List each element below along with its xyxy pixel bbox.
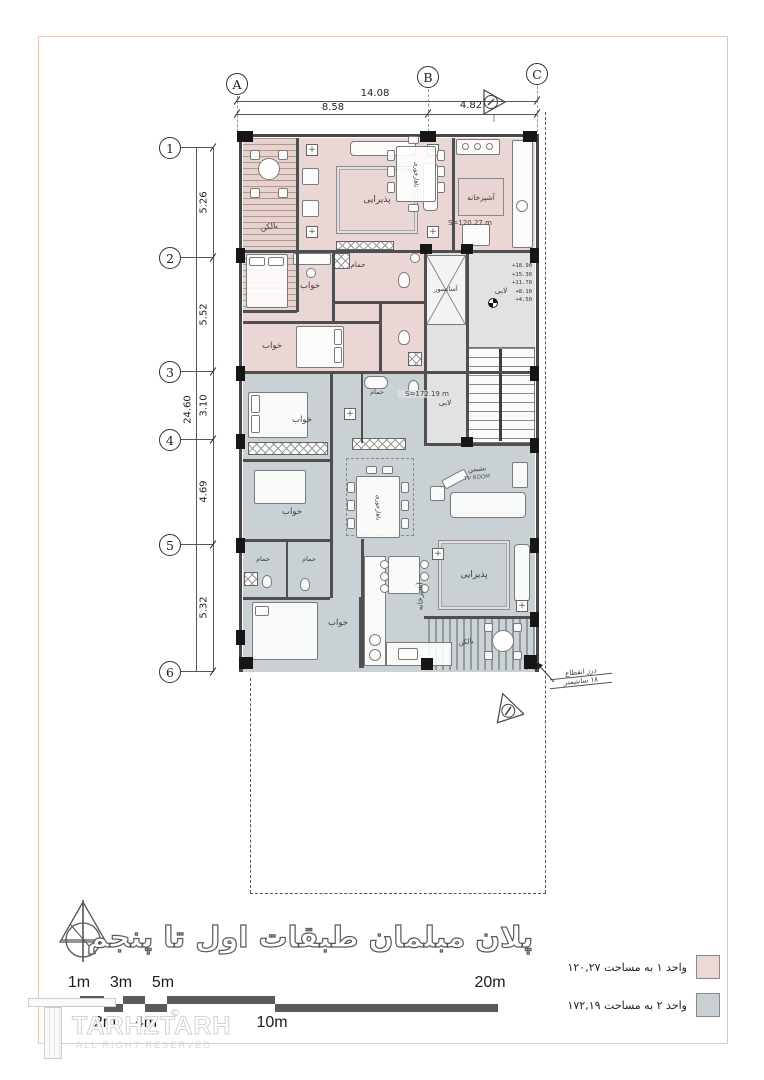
grid-row-marker-1: 1 [159,137,181,159]
stove-burner [462,143,469,150]
dim-r2-r3: 5.52 [199,297,210,333]
dim-r1-r2: 5.26 [199,185,210,221]
column [239,657,253,669]
wall [359,597,362,668]
dining-chair [437,150,445,161]
grid-leader-line [181,544,213,545]
grid-leader-line [181,371,213,372]
legend-swatch-unit2 [696,993,720,1017]
dining-chair [401,482,409,493]
dining-table-label: ناهارخوری [374,494,381,520]
kitchen-counter [512,140,533,248]
balcony-chair [513,623,522,632]
grid-row-marker-6: 6 [159,661,181,683]
column [461,437,473,447]
lot-boundary [250,678,251,893]
wall [424,616,535,619]
column [420,244,432,254]
column [236,248,245,263]
dimension-line [196,148,197,672]
balcony-chair [278,188,288,198]
toilet [398,272,410,288]
grid-row-marker-4: 4 [159,429,181,451]
dim-r4-r5: 4.69 [199,474,210,510]
column [530,612,539,627]
legend-row-unit1: واحد ۱ به مساحت ۱۲۰,۲۷ [540,950,720,984]
dining-chair [382,466,393,474]
plus-symbol: + [344,408,356,420]
sink [410,253,420,263]
chair [380,572,389,581]
armchair [302,168,319,185]
drawing-title: پلان مبلمان طبقات اول تا پنجم [87,920,533,954]
balcony-table [258,158,280,180]
level-value: +4.50 [498,296,532,305]
dining-chair [401,518,409,529]
scale-bar-segment [145,1004,167,1012]
kitchen-sink [369,634,381,646]
lobby-label: لابی [430,398,460,407]
column [530,538,539,553]
bedroom-label: خواب [322,618,354,628]
legend-row-unit2: واحد ۲ به مساحت ۱۷۲,۱۹ [540,988,720,1022]
column [237,131,253,142]
grid-row-label: 1 [166,141,174,156]
level-value: +11.70 [498,279,532,288]
living-room-label: پذیرایی [460,570,487,580]
balcony-chair [513,651,522,660]
dining-chair [408,204,419,212]
balcony-chair [278,150,288,160]
pillow [255,606,269,616]
dining-chair [387,150,395,161]
scale-label: 20m [470,974,510,992]
scale-label: 10m [252,1014,292,1032]
dining-chair [387,166,395,177]
watermark-subtitle: ALL RIGHT RESERVED [76,1040,212,1051]
dining-table-label: ناهارخوری [412,161,419,187]
wall [379,301,382,371]
grid-row-label: 2 [166,251,174,266]
tsquare-icon-blade [44,1007,62,1059]
chair [380,560,389,569]
wall [243,310,297,313]
side-table [512,462,528,488]
column [236,366,245,381]
bedroom-label: خواب [256,341,288,351]
column [530,438,539,453]
column [530,366,539,381]
dining-chair [347,482,355,493]
dimension-line [213,148,214,672]
bath-label: حمام [250,555,276,563]
balcony-chair [484,651,493,660]
wall [243,597,330,600]
desk-chair [306,268,316,278]
armchair [430,486,445,501]
dining-chair [387,182,395,193]
grid-leader-line [181,257,213,258]
level-value: +15.30 [498,271,532,280]
balcony-table [492,630,514,652]
legend-swatch-unit1 [696,955,720,979]
section-marker-icon [478,86,510,122]
bath-label: حمام [344,261,372,269]
column [420,131,436,142]
bedroom-label: خواب [294,281,326,291]
grid-row-label: 4 [166,433,174,448]
wall [424,443,535,446]
grid-row-label: 3 [166,365,174,380]
grid-col-label: B [423,70,432,85]
kitchen-sink-basin [398,648,418,660]
kitchen-sink [369,649,381,661]
dining-chair [437,166,445,177]
level-value: +18.90 [498,262,532,271]
pillow [251,415,260,433]
dining-chair [366,466,377,474]
kitchen-label: آشپزخانه [416,569,425,625]
grid-leader-line [181,671,213,672]
grid-col-label: C [532,67,542,82]
bath-label: حمام [296,555,322,563]
dining-chair [401,500,409,511]
stove-burner [486,143,493,150]
grid-col-marker-c: C [526,63,548,85]
stair-stringer [499,349,502,441]
grid-row-marker-2: 2 [159,247,181,269]
scale-bar-segment [123,996,145,1004]
wall [424,252,427,443]
dim-r3-r4: 3.10 [199,388,210,424]
column [523,131,537,142]
chair [380,584,389,593]
legend-label-unit2: واحد ۲ به مساحت ۱۷۲,۱۹ [567,999,687,1012]
wall [243,250,535,253]
watermark-name: TARHZTARH [72,1012,231,1041]
lot-boundary [250,893,546,894]
plus-symbol: + [432,548,444,560]
kitchen-sink [516,200,528,212]
pillow [249,257,265,266]
dining-chair [408,136,419,144]
scale-label: 5m [148,974,178,992]
toilet [300,578,310,591]
level-annotations: +18.90 +15.30 +11.70 +8.10 +4.50 [498,262,532,305]
plus-symbol: + [516,600,528,612]
wall [332,301,424,304]
wall [243,459,330,462]
wall [361,372,363,443]
pillow [251,395,260,413]
dim-overall-width: 14.08 [345,88,405,99]
legend-label-unit1: واحد ۱ به مساحت ۱۲۰,۲۷ [567,961,687,974]
balcony-chair [484,623,493,632]
kitchen-island: آشپزخانه [458,178,504,216]
grid-leader-line [181,147,213,148]
unit1-area-label: S=120.27 m [442,219,498,227]
wall [330,372,333,598]
living-room-rug: پذیرایی [438,540,510,610]
column [236,434,245,449]
shower [244,572,258,586]
column [421,658,433,670]
scale-label: 3m [106,974,136,992]
elevator-label: آسانسور [424,285,468,293]
pillow [334,347,342,363]
column [530,248,539,263]
unit2-area-label: S=172.19 m [398,390,456,398]
grid-leader-line [181,439,213,440]
wall [286,539,288,597]
shower [408,352,422,366]
grid-col-label: A [232,77,241,92]
pillow [268,257,284,266]
sofa [514,544,530,602]
dim-r5-r6: 5.32 [199,590,210,626]
tv-sofa [450,492,526,518]
bedroom-label: خواب [286,415,318,425]
joint-note: درز انقطاع ۱۸ سانتیمتر [550,668,612,686]
dining-table: ناهارخوری [396,146,436,202]
grid-col-marker-b: B [417,66,439,88]
kitchen-counter [386,642,452,666]
wall [243,321,380,324]
scale-bar-segment [275,1004,498,1012]
bed [254,470,306,504]
lot-boundary [545,112,546,893]
toilet [398,330,410,345]
living-room-label: پذیرایی [363,195,390,205]
bedroom-label: خواب [276,507,308,517]
plus-symbol: + [306,144,318,156]
column [236,630,245,645]
dining-chair [437,182,445,193]
kitchen-label: آشپزخانه [467,193,495,202]
toilet [262,575,272,588]
wall [332,250,335,322]
scale-bar-segment [167,996,275,1004]
grid-row-marker-3: 3 [159,361,181,383]
grid-row-marker-5: 5 [159,534,181,556]
grid-row-label: 5 [166,538,174,553]
wall [243,371,535,374]
plus-symbol: + [306,226,318,238]
level-value: +8.10 [498,288,532,297]
wall [466,252,469,443]
kitchen-oven [462,224,490,246]
pillow [334,329,342,345]
tsquare-icon [28,998,116,1007]
plus-symbol: + [427,226,439,238]
legend: واحد ۱ به مساحت ۱۲۰,۲۷ واحد ۲ به مساحت ۱… [540,950,720,1022]
grid-col-marker-a: A [226,73,248,95]
desk [293,253,331,265]
dim-overall-height: 24.60 [183,389,194,431]
stove-burner [474,143,481,150]
armchair [302,200,319,217]
column [461,244,473,254]
closet [336,241,394,250]
drawing-title-wrap: پلان مبلمان طبقات اول تا پنجم [130,912,490,962]
dining-chair [347,518,355,529]
dim-a-b: 8.58 [305,102,361,113]
wall [452,138,455,250]
bath-label: حمام [364,388,390,396]
grid-row-label: 6 [166,665,174,680]
level-marker-icon [488,298,498,308]
column [236,538,245,553]
scale-label: 1m [64,974,94,992]
balcony-chair [250,188,260,198]
section-marker-icon [490,690,524,724]
closet [248,442,328,455]
balcony-chair [250,150,260,160]
dining-table: ناهارخوری [356,476,400,538]
dining-chair [347,500,355,511]
